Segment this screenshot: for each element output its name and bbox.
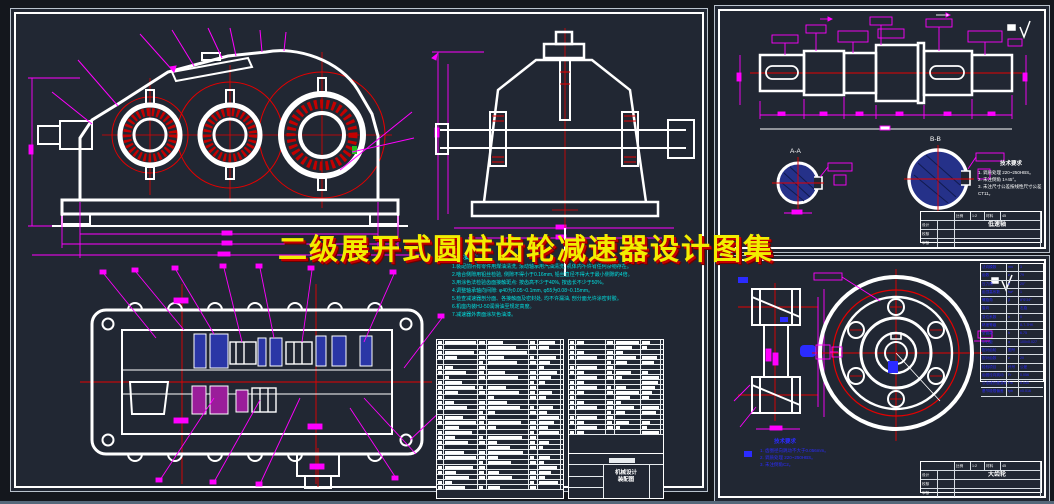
shaft-sheet: A-A B-B	[714, 5, 1050, 253]
end-view	[424, 24, 702, 246]
surface-roughness-icon	[1008, 21, 1030, 37]
section-a-label: A-A	[790, 148, 802, 155]
cad-drawing-canvas: 技术要求: 1.装配前所有零件用煤油清洗, 滚动轴承用汽油清洗, 机体内不许有任…	[0, 0, 1054, 504]
gear-title-block: 比例 1:2 材料 45 设计 校核 审核 大齿轮	[920, 461, 1042, 493]
gear-sheet: 法向模数mn3齿数z79压力角α20°齿顶高系数ha*1螺旋角β8°6′34″旋…	[714, 255, 1050, 502]
section-b-label: B-B	[930, 136, 941, 143]
green-marker	[352, 146, 357, 154]
assembly-title-block: 机械设计 装配图	[569, 453, 663, 498]
gear-sheet-frame: 法向模数mn3齿数z79压力角α20°齿顶高系数ha*1螺旋角β8°6′34″旋…	[718, 259, 1046, 498]
plan-view	[64, 258, 449, 488]
shaft-part-name: 低速轴	[979, 222, 1015, 229]
assembly-title-text: 机械设计 装配图	[603, 470, 649, 484]
gear-part-name: 大齿轮	[979, 472, 1015, 479]
parts-list-left	[436, 339, 564, 499]
tech-notes-lines: 1.装配前所有零件用煤油清洗, 滚动轴承用汽油清洗, 机体内不许有任何杂物存在。…	[452, 263, 680, 319]
shaft-tech-notes: 技术要求 1. 调质处理 220~250HBS。2. 未注倒角 1×45°。3.…	[978, 161, 1044, 197]
gear-parameter-table: 法向模数mn3齿数z79压力角α20°齿顶高系数ha*1螺旋角β8°6′34″旋…	[980, 263, 1044, 382]
shaft-title-block: 比例 1:2 材料 45 设计 校核 审核 低速轴	[920, 211, 1042, 243]
shaft-sheet-frame: A-A B-B	[718, 9, 1046, 249]
gear-tech-notes: 技术要求 1. 齿圈径向跳动不大于0.056mm。2. 调质处理 220~250…	[760, 439, 910, 468]
drawing-set-title: 二级展开式圆柱齿轮减速器设计图集	[278, 226, 778, 268]
parts-list-right-rows	[569, 340, 663, 435]
main-assembly-front-view	[22, 20, 437, 260]
parts-list-right: 机械设计 装配图	[568, 339, 664, 499]
